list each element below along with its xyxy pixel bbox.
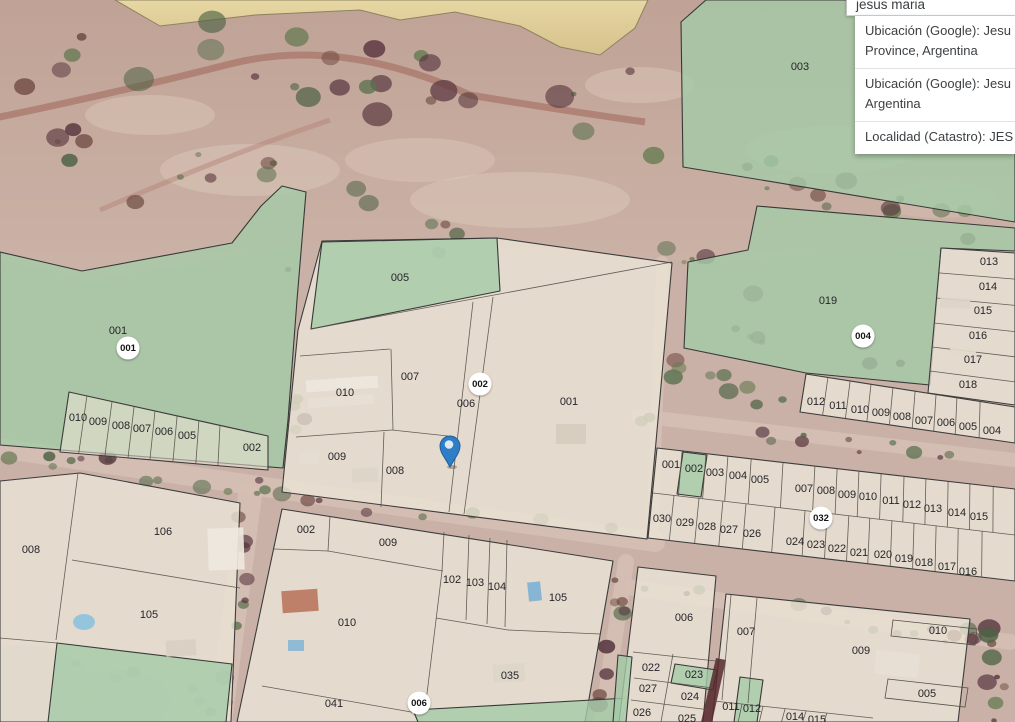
parcel-label: 029 bbox=[676, 517, 694, 529]
parcel-label: 020 bbox=[874, 549, 892, 561]
parcel-label: 015 bbox=[974, 305, 992, 317]
parcel-label: 006 bbox=[457, 398, 475, 410]
parcel-label: 008 bbox=[893, 411, 911, 423]
parcel-label: 014 bbox=[979, 281, 997, 293]
parcel-label: 007 bbox=[401, 371, 419, 383]
block-badge: 032 bbox=[810, 507, 833, 530]
parcel-label: 005 bbox=[751, 474, 769, 486]
parcel-label: 002 bbox=[243, 442, 261, 454]
parcel-label: 024 bbox=[681, 691, 699, 703]
search-result-item[interactable]: Ubicación (Google): JesuProvince, Argent… bbox=[855, 16, 1015, 68]
parcel-label: 016 bbox=[969, 330, 987, 342]
parcel-label: 009 bbox=[379, 537, 397, 549]
parcel-label: 026 bbox=[633, 707, 651, 719]
result-line2: Argentina bbox=[865, 94, 1015, 114]
search-result-item[interactable]: Ubicación (Google): JesuArgentina bbox=[855, 68, 1015, 121]
parcel-label: 018 bbox=[959, 379, 977, 391]
parcel-label: 009 bbox=[838, 489, 856, 501]
result-line1: Ubicación (Google): Jesu bbox=[865, 21, 1015, 41]
parcel-label: 104 bbox=[488, 581, 506, 593]
parcel-label: 012 bbox=[807, 396, 825, 408]
parcel-label: 015 bbox=[970, 511, 988, 523]
parcel-label: 010 bbox=[336, 387, 354, 399]
parcel-label: 105 bbox=[549, 592, 567, 604]
svg-text:004: 004 bbox=[855, 331, 872, 342]
parcel-label: 028 bbox=[698, 521, 716, 533]
parcel-label: 009 bbox=[852, 645, 870, 657]
parcel-label: 018 bbox=[915, 557, 933, 569]
parcel-label: 017 bbox=[938, 561, 956, 573]
parcel-label: 001 bbox=[109, 325, 127, 337]
parcel-label: 001 bbox=[662, 459, 680, 471]
result-line2: Province, Argentina bbox=[865, 41, 1015, 61]
parcel-label: 009 bbox=[872, 407, 890, 419]
search-results-dropdown: Ubicación (Google): JesuProvince, Argent… bbox=[855, 16, 1015, 154]
result-line1: Ubicación (Google): Jesu bbox=[865, 74, 1015, 94]
parcel-label: 005 bbox=[959, 421, 977, 433]
parcel-label: 025 bbox=[678, 713, 696, 722]
parcel-label: 008 bbox=[112, 420, 130, 432]
parcel-label: 024 bbox=[786, 536, 804, 548]
map-viewport[interactable]: 0010100090080070060050020050070100060010… bbox=[0, 0, 1015, 722]
parcel-label: 027 bbox=[720, 524, 738, 536]
parcel-label: 003 bbox=[706, 467, 724, 479]
parcel-label: 026 bbox=[743, 528, 761, 540]
parcel-label: 010 bbox=[338, 617, 356, 629]
parcel-label: 004 bbox=[983, 425, 1001, 437]
parcel-label: 014 bbox=[948, 507, 966, 519]
parcel-label: 011 bbox=[722, 701, 740, 713]
block-badge: 006 bbox=[408, 692, 431, 715]
parcel-label: 030 bbox=[653, 513, 671, 525]
parcel-label: 006 bbox=[675, 612, 693, 624]
parcel-label: 005 bbox=[178, 430, 196, 442]
parcel-label: 014 bbox=[786, 711, 804, 722]
parcel-label: 013 bbox=[924, 503, 942, 515]
parcel-label: 035 bbox=[501, 670, 519, 682]
parcel-label: 010 bbox=[859, 491, 877, 503]
svg-text:002: 002 bbox=[472, 379, 488, 390]
parcel-label: 008 bbox=[817, 485, 835, 497]
block-badge: 002 bbox=[469, 373, 492, 396]
parcel-label: 027 bbox=[639, 683, 657, 695]
parcel-label: 011 bbox=[882, 495, 900, 507]
parcel-label: 010 bbox=[69, 412, 87, 424]
parcel-label: 105 bbox=[140, 609, 158, 621]
parcel-label: 006 bbox=[155, 426, 173, 438]
parcel-label: 006 bbox=[937, 417, 955, 429]
parcel-label: 010 bbox=[851, 404, 869, 416]
parcel-label: 106 bbox=[154, 526, 172, 538]
result-line1: Localidad (Catastro): JES bbox=[865, 127, 1015, 147]
svg-text:001: 001 bbox=[120, 343, 137, 354]
parcel-label: 021 bbox=[850, 547, 868, 559]
search-result-item[interactable]: Localidad (Catastro): JES bbox=[855, 121, 1015, 154]
parcel-label: 016 bbox=[959, 566, 977, 578]
svg-text:006: 006 bbox=[411, 698, 427, 709]
parcel-label: 003 bbox=[791, 61, 809, 73]
parcel-label: 015 bbox=[808, 714, 826, 722]
parcel-label: 103 bbox=[466, 577, 484, 589]
block-badge: 001 bbox=[117, 337, 140, 360]
parcel-label: 041 bbox=[325, 698, 343, 710]
parcel-label: 023 bbox=[685, 669, 703, 681]
parcel-label: 102 bbox=[443, 574, 461, 586]
parcel-label: 002 bbox=[297, 524, 315, 536]
parcel-label: 022 bbox=[642, 662, 660, 674]
parcel-label: 011 bbox=[829, 400, 847, 412]
svg-text:032: 032 bbox=[813, 513, 829, 524]
parcel-label: 019 bbox=[819, 295, 837, 307]
parcel-label: 001 bbox=[560, 396, 578, 408]
parcel-label: 008 bbox=[22, 544, 40, 556]
parcel-label: 012 bbox=[743, 703, 761, 715]
parcel-label: 007 bbox=[737, 626, 755, 638]
parcel-label: 005 bbox=[391, 272, 409, 284]
parcel-label: 007 bbox=[795, 483, 813, 495]
parcel-label: 005 bbox=[918, 688, 936, 700]
parcel-label: 019 bbox=[895, 553, 913, 565]
parcel-label: 022 bbox=[828, 543, 846, 555]
parcel-label: 009 bbox=[89, 416, 107, 428]
search-input[interactable]: jesus maria bbox=[846, 0, 1015, 16]
parcel-label: 007 bbox=[133, 423, 151, 435]
parcel-label: 013 bbox=[980, 256, 998, 268]
parcel-label: 012 bbox=[903, 499, 921, 511]
parcel-label: 008 bbox=[386, 465, 404, 477]
block-badge: 004 bbox=[852, 325, 875, 348]
parcel-label: 010 bbox=[929, 625, 947, 637]
parcel-label: 009 bbox=[328, 451, 346, 463]
parcel-label: 017 bbox=[964, 354, 982, 366]
parcel-label: 023 bbox=[807, 539, 825, 551]
parcel-label: 007 bbox=[915, 415, 933, 427]
parcel-label: 002 bbox=[685, 463, 703, 475]
parcel-label: 004 bbox=[729, 470, 747, 482]
search-query-text: jesus maria bbox=[856, 0, 925, 12]
